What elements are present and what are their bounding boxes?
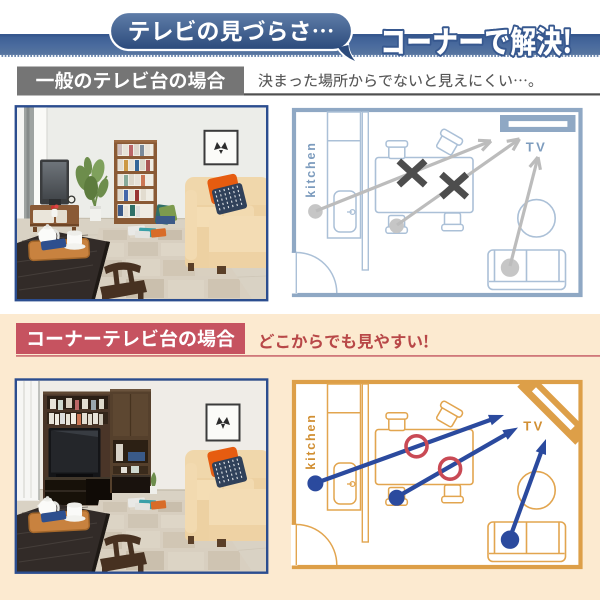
svg-text:kitchen: kitchen bbox=[304, 413, 318, 469]
svg-text:TV: TV bbox=[523, 419, 544, 434]
svg-text:kitchen: kitchen bbox=[304, 141, 318, 197]
svg-text:TV: TV bbox=[526, 140, 547, 155]
